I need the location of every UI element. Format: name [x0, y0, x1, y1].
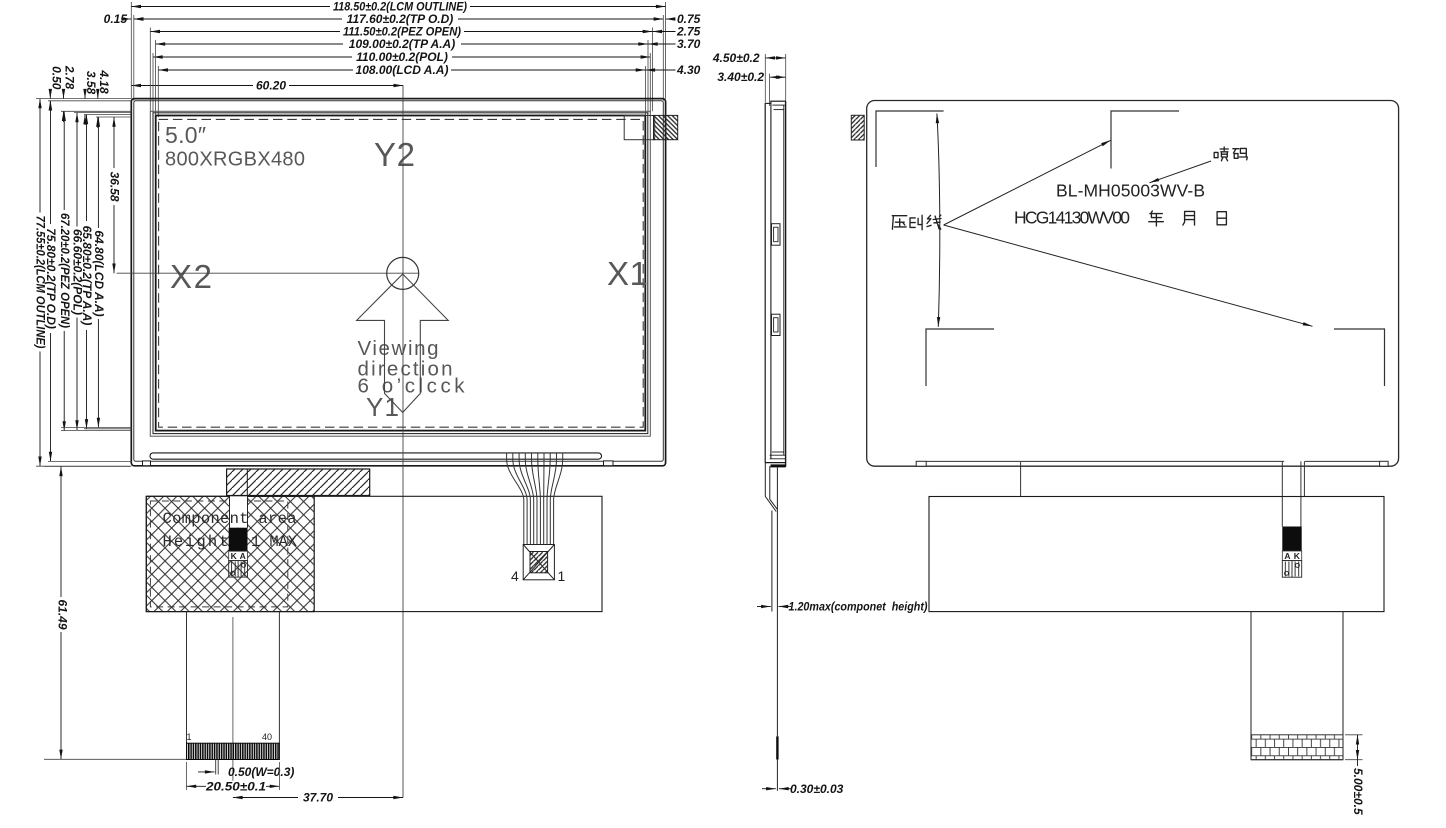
svg-text:3.70: 3.70: [677, 37, 701, 51]
svg-text:36.58: 36.58: [108, 172, 122, 202]
svg-text:3.40±0.2: 3.40±0.2: [717, 70, 764, 84]
svg-text:0.15: 0.15: [104, 12, 128, 26]
svg-text:67.20±0.2(PEZ OPEN): 67.20±0.2(PEZ OPEN): [58, 213, 72, 328]
svg-text:0.50: 0.50: [50, 66, 64, 90]
svg-text:110.00±0.2(POL): 110.00±0.2(POL): [356, 50, 448, 64]
svg-text:64.80(LCD A.A): 64.80(LCD A.A): [92, 230, 106, 316]
svg-text:Y2: Y2: [374, 136, 415, 173]
svg-text:X2: X2: [170, 258, 212, 295]
svg-text:Component area: Component area: [163, 510, 297, 528]
svg-text:4.18: 4.18: [97, 69, 111, 94]
svg-text:40: 40: [262, 732, 272, 742]
svg-text:1 MAX: 1 MAX: [251, 533, 298, 551]
svg-text:HCG14130WV00: HCG14130WV00: [1014, 208, 1130, 228]
svg-text:65.80±0.2(TP A.A): 65.80±0.2(TP A.A): [80, 226, 94, 326]
svg-text:3.58: 3.58: [84, 71, 98, 95]
svg-text:BL-MH05003WV-B: BL-MH05003WV-B: [1056, 181, 1205, 201]
svg-text:2.78: 2.78: [63, 65, 77, 90]
svg-text:4.50±0.2: 4.50±0.2: [712, 51, 760, 65]
svg-text:1: 1: [558, 568, 566, 584]
svg-text:4: 4: [511, 568, 519, 584]
svg-text:0.30±0.03: 0.30±0.03: [790, 782, 844, 796]
svg-text:60.20: 60.20: [256, 79, 286, 93]
svg-text:800XRGBX480: 800XRGBX480: [165, 149, 305, 171]
svg-text:6 o’clcck: 6 o’clcck: [358, 375, 466, 398]
svg-text:K: K: [1294, 551, 1301, 561]
svg-text:A: A: [240, 551, 246, 561]
svg-text:75.80±0.2(TP O.D): 75.80±0.2(TP O.D): [44, 228, 58, 329]
svg-text:37.70: 37.70: [303, 791, 333, 805]
svg-text:108.00(LCD A.A): 108.00(LCD A.A): [356, 63, 449, 77]
svg-text:A: A: [1284, 551, 1290, 561]
svg-text:5.0″: 5.0″: [165, 122, 206, 148]
svg-text:K: K: [231, 551, 238, 561]
svg-text:109.00±0.2(TP A.A): 109.00±0.2(TP A.A): [349, 37, 455, 51]
svg-text:1: 1: [187, 732, 192, 742]
svg-text:20.50±0.1: 20.50±0.1: [205, 780, 266, 794]
svg-text:61.49: 61.49: [56, 599, 70, 629]
svg-text:5.00±0.5: 5.00±0.5: [1351, 768, 1365, 815]
svg-text:4.30: 4.30: [676, 63, 701, 77]
svg-text:1.20max(componet height): 1.20max(componet height): [789, 600, 928, 614]
svg-text:X1: X1: [607, 255, 648, 292]
svg-text:0.50(W=0.3): 0.50(W=0.3): [228, 765, 294, 779]
